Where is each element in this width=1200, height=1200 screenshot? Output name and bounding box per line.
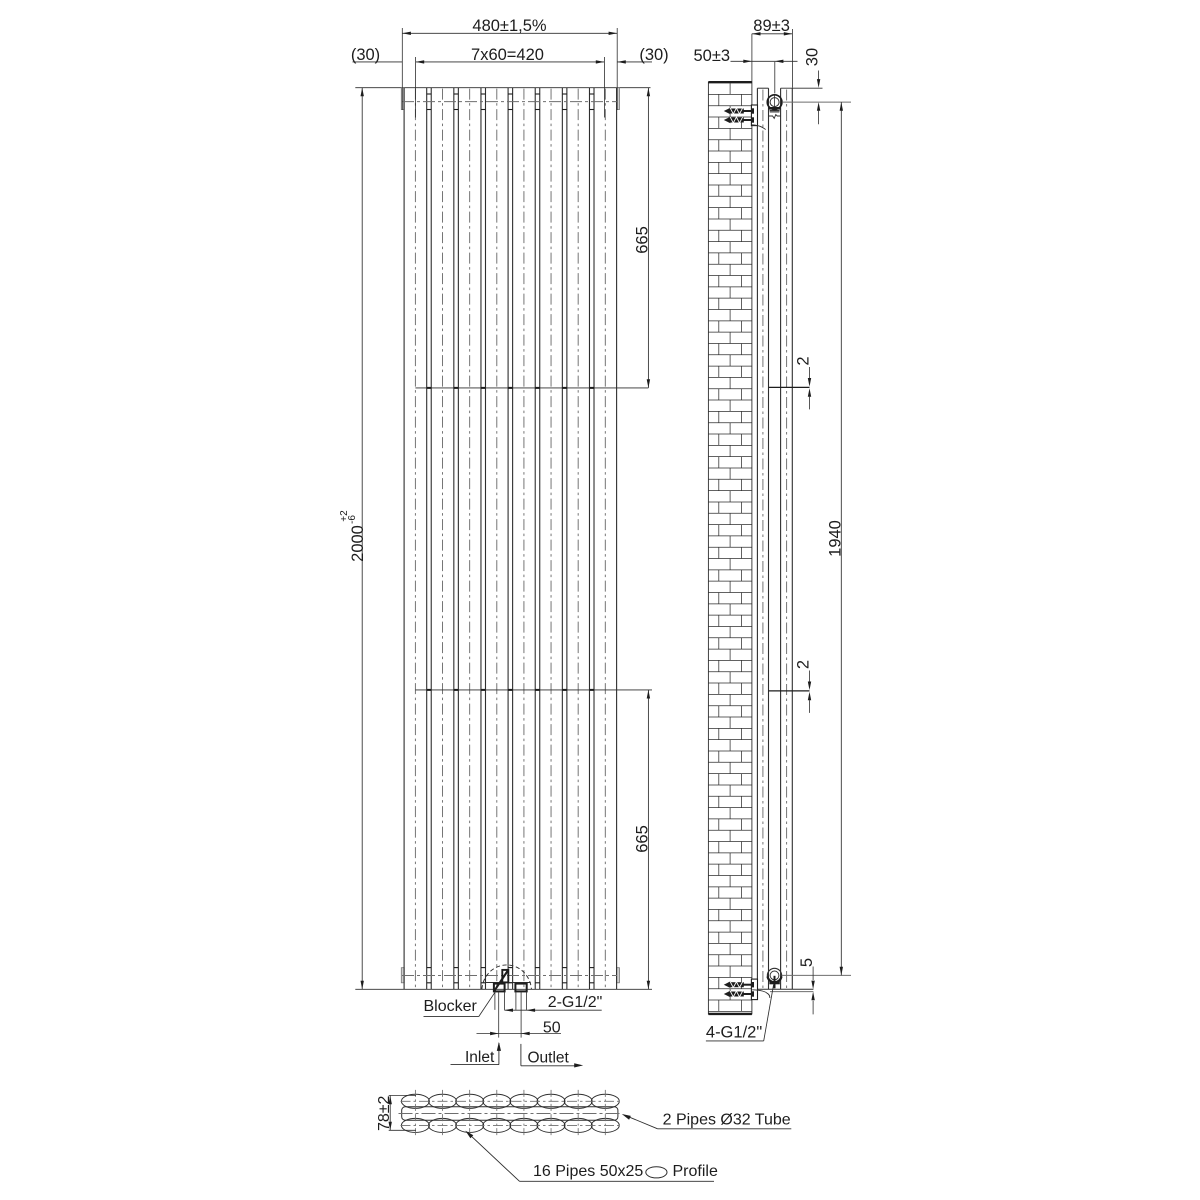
svg-text:7x60=420: 7x60=420 — [471, 46, 544, 64]
svg-text:665: 665 — [633, 825, 651, 853]
svg-text:2: 2 — [795, 356, 813, 365]
svg-text:16 Pipes 50x25: 16 Pipes 50x25 — [533, 1163, 643, 1180]
svg-text:4-G1/2": 4-G1/2" — [706, 1023, 762, 1041]
svg-text:2 Pipes Ø32 Tube: 2 Pipes Ø32 Tube — [663, 1112, 791, 1129]
svg-text:2: 2 — [795, 660, 813, 669]
svg-text:50±3: 50±3 — [694, 47, 731, 65]
svg-text:5: 5 — [798, 958, 816, 967]
svg-text:Blocker: Blocker — [424, 998, 478, 1015]
svg-text:Profile: Profile — [673, 1163, 718, 1180]
svg-text:480±1,5%: 480±1,5% — [472, 17, 547, 35]
svg-text:2-G1/2": 2-G1/2" — [548, 994, 603, 1011]
svg-text:665: 665 — [633, 226, 651, 254]
svg-text:Outlet: Outlet — [528, 1050, 570, 1067]
svg-text:1940: 1940 — [826, 520, 844, 557]
svg-text:Inlet: Inlet — [465, 1049, 495, 1066]
svg-text:-6: -6 — [347, 515, 358, 524]
svg-text:(30): (30) — [639, 46, 668, 64]
svg-text:2000: 2000 — [349, 525, 367, 562]
svg-text:50: 50 — [543, 1019, 561, 1036]
svg-text:30: 30 — [804, 48, 822, 66]
svg-text:(30): (30) — [351, 46, 380, 64]
